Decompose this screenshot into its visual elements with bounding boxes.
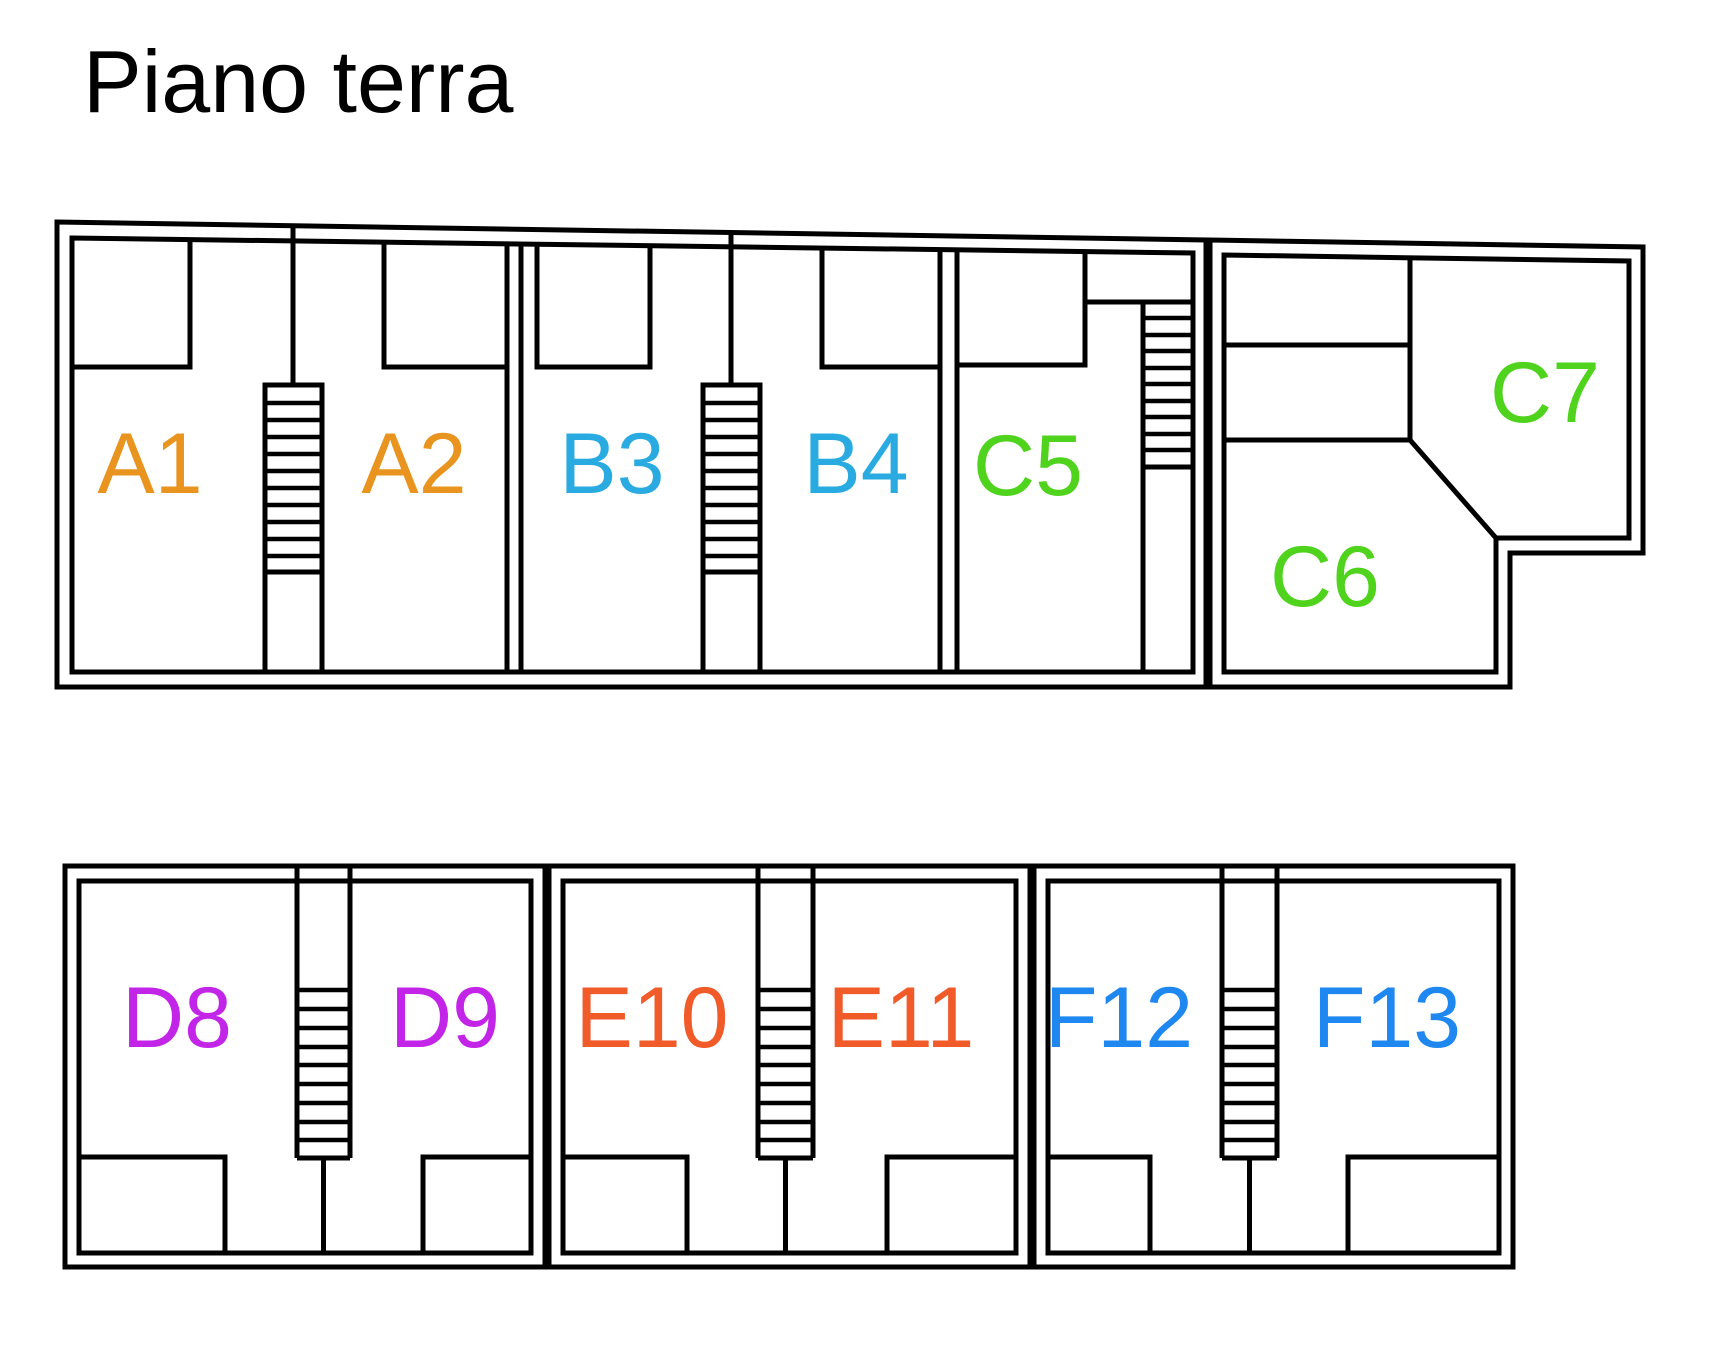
unit-label-c5: C5 [973, 418, 1083, 514]
unit-label-d9: D9 [390, 970, 500, 1066]
unit-label-e10: E10 [575, 970, 728, 1066]
floor-plan-page: Piano terra A1 A2 B3 B4 C5 C6 C7 D8 D9 E… [0, 0, 1709, 1345]
unit-label-c6: C6 [1270, 529, 1380, 625]
unit-label-b3: B3 [559, 416, 664, 512]
floor-plan-drawing: Piano terra A1 A2 B3 B4 C5 C6 C7 D8 D9 E… [0, 0, 1709, 1345]
unit-label-c7: C7 [1490, 345, 1600, 441]
unit-label-f12: F12 [1045, 970, 1193, 1066]
page-title: Piano terra [83, 32, 514, 131]
unit-label-d8: D8 [122, 970, 232, 1066]
unit-label-a2: A2 [361, 416, 466, 512]
unit-label-b4: B4 [803, 416, 908, 512]
unit-label-e11: E11 [828, 970, 975, 1066]
unit-label-f13: F13 [1313, 970, 1461, 1066]
unit-label-a1: A1 [97, 416, 202, 512]
